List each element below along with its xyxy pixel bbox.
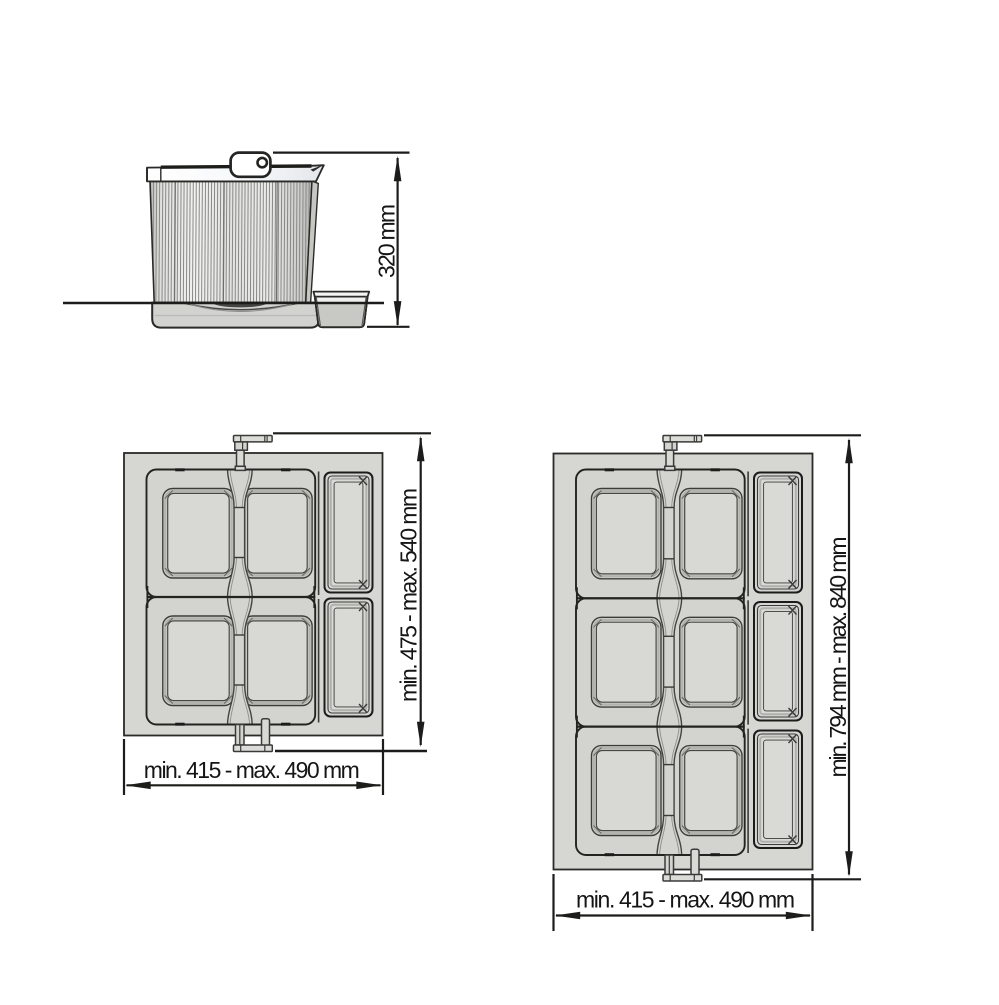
svg-text:320 mm: 320 mm [373,204,399,278]
svg-text:min. 415 - max. 490 mm: min. 415 - max. 490 mm [144,757,360,783]
svg-text:min. 794 mm - max. 840 mm: min. 794 mm - max. 840 mm [825,537,851,778]
svg-text:min. 475 - max. 540 mm: min. 475 - max. 540 mm [395,488,421,702]
svg-text:min. 415 - max. 490 mm: min. 415 - max. 490 mm [576,887,795,913]
